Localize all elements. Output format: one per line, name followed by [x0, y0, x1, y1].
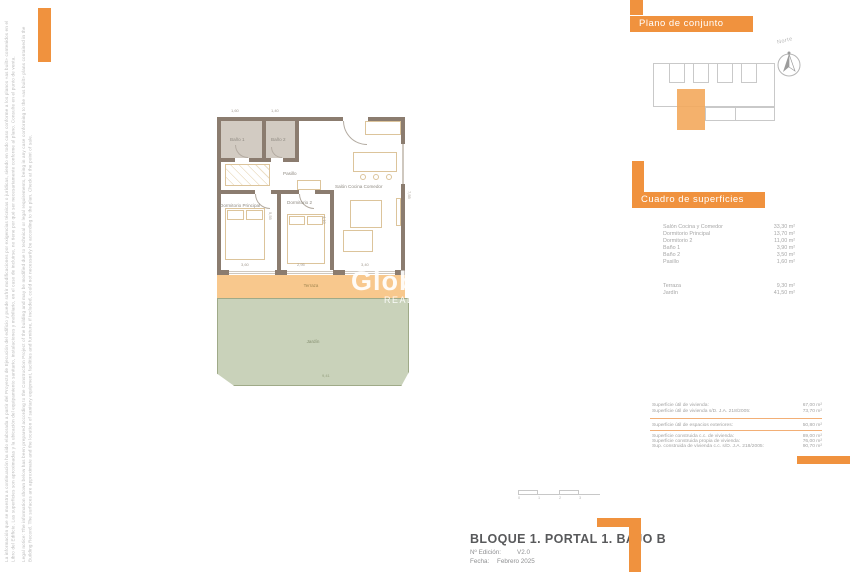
- dim-bed2-v: 4,10: [322, 216, 327, 224]
- wall-bath-divider: [262, 121, 266, 158]
- surface-row: Jardín 41,50 m²: [663, 290, 795, 297]
- accent-bar-siteplan: [630, 0, 643, 15]
- summary-label: Sup. construida de vivienda c.c. s/D. J.…: [652, 444, 764, 449]
- surface-label: Pasillo: [663, 259, 679, 266]
- summary-row: Superficie útil de vivienda: 67,00 m²: [652, 403, 822, 408]
- stool-2: [373, 174, 379, 180]
- summary-divider-2: [650, 430, 822, 431]
- siteplan-mini-map: [645, 55, 785, 135]
- dim-garden-width: 9,41: [322, 373, 330, 378]
- bedroom2-label: Dormitorio 2: [287, 200, 312, 205]
- date-value: Febrero 2025: [497, 558, 535, 565]
- siteplan-div-4: [741, 63, 757, 83]
- summary-label: Superficie útil de vivienda s/D. J.A. 21…: [652, 409, 750, 414]
- window-bottom-2b: [287, 273, 333, 274]
- scale-num-2: 2: [559, 496, 561, 500]
- dim-top-1: 1,60: [231, 108, 239, 113]
- summary-value: 90,70 m²: [803, 444, 822, 449]
- scale-box-2: [559, 490, 579, 495]
- bed-main-pillow-1: [227, 210, 244, 220]
- siteplan-div-3: [717, 63, 733, 83]
- accent-bracket-vertical: [629, 518, 641, 572]
- hall-label: Pasillo: [283, 171, 297, 176]
- scale-bar: 0 1 2 3: [518, 488, 600, 502]
- dim-bottom-1: 3,60: [241, 262, 249, 267]
- wardrobe-hall: [225, 164, 270, 186]
- surface-row: Pasillo 1,60 m²: [663, 259, 795, 266]
- garden-area: Jardín 9,41: [217, 298, 409, 386]
- summary-row: Superficie útil de vivienda s/D. J.A. 21…: [652, 409, 822, 414]
- wall-bath-bottom-3: [283, 158, 299, 162]
- summary-label: Superficie útil de vivienda:: [652, 403, 709, 408]
- summary-row: Sup. construida de vivienda c.c. s/D. J.…: [652, 444, 822, 449]
- closet-bed2: [297, 180, 321, 190]
- wall-bath-bottom-1: [221, 158, 235, 162]
- siteplan-div-1: [669, 63, 685, 83]
- accent-bar-summary: [797, 456, 850, 464]
- siteplan-highlighted-unit: [677, 89, 705, 130]
- legal-disclaimer: La información que se muestra a continua…: [4, 10, 34, 562]
- siteplan-lower-row: [705, 107, 775, 121]
- kitchen-counter: [365, 121, 401, 135]
- accent-bar-surfaces: [632, 161, 644, 193]
- surface-value: 1,60 m²: [777, 259, 795, 266]
- summary-value: 73,70 m²: [803, 409, 822, 414]
- dim-right-v: 7,55: [407, 191, 412, 199]
- stool-1: [360, 174, 366, 180]
- surfaces-header: Cuadro de superficies: [632, 192, 765, 208]
- edition-label: Nº Edición:: [470, 549, 501, 556]
- scale-num-3: 3: [579, 496, 581, 500]
- wall-bed2-right: [330, 190, 334, 270]
- bedroom-main-label: Dormitorio Principal: [220, 203, 260, 208]
- floor-plan: Baño 1 Baño 2 Pasillo Dormitorio Princip…: [213, 96, 413, 390]
- watermark-text-1: Glob: [351, 266, 417, 297]
- summary-divider-1: [650, 418, 822, 419]
- bed-main-pillow-2: [246, 210, 263, 220]
- summary-label: Superficie útil de espacios exteriores:: [652, 423, 733, 428]
- window-bottom-2: [287, 271, 333, 272]
- bath2-label: Baño 2: [271, 137, 286, 142]
- watermark-text-2: REAL: [384, 295, 414, 305]
- window-right: [402, 144, 404, 184]
- living-label: Salón Cocina Comedor: [335, 184, 383, 189]
- wall-bed-divider: [277, 190, 281, 270]
- kitchen-island: [353, 152, 397, 172]
- window-bottom-1: [229, 271, 275, 272]
- summary-value: 67,00 m²: [803, 403, 822, 408]
- dim-bed-main-v: 5,55: [268, 212, 273, 220]
- scale-num-1: 1: [538, 496, 540, 500]
- siteplan-header: Plano de conjunto: [630, 16, 753, 32]
- entrance-door-arc: [343, 121, 367, 145]
- garden-label: Jardín: [218, 339, 408, 344]
- bed-2-pillow-1: [289, 216, 305, 225]
- wall-right-upper: [401, 117, 405, 144]
- summary-value: 50,80 m²: [803, 423, 822, 428]
- wall-bath-bottom-2: [249, 158, 271, 162]
- siteplan-div-2: [693, 63, 709, 83]
- window-bottom-1b: [229, 273, 275, 274]
- surface-label: Jardín: [663, 290, 678, 297]
- dim-top-2: 1,40: [271, 108, 279, 113]
- rug: [343, 230, 373, 252]
- wall-hall-bottom-1: [221, 190, 255, 194]
- siteplan-lower-div: [735, 107, 736, 121]
- bath1-label: Baño 1: [230, 137, 245, 142]
- scale-box-1: [518, 490, 538, 495]
- plan-sheet: La información que se muestra a continua…: [0, 0, 850, 572]
- dim-bottom-2: 2,95: [297, 262, 305, 267]
- bed-2-pillow-2: [307, 216, 323, 225]
- legal-disclaimer-en: Legal notice: The information shown belo…: [21, 10, 34, 562]
- stool-3: [386, 174, 392, 180]
- accent-bar-top-left: [38, 8, 51, 62]
- legal-disclaimer-es: La información que se muestra a continua…: [4, 10, 17, 562]
- scale-num-0: 0: [518, 496, 520, 500]
- tv-unit: [396, 198, 401, 226]
- date-label: Fecha:: [470, 558, 489, 565]
- wall-right-lower: [401, 184, 405, 275]
- wall-hall-bottom-2: [271, 190, 299, 194]
- sofa: [350, 200, 382, 228]
- wall-bath-right: [295, 121, 299, 162]
- edition-value: V2.0: [517, 549, 530, 556]
- summary-row: Superficie útil de espacios exteriores: …: [652, 423, 822, 428]
- surface-value: 41,50 m²: [774, 290, 795, 297]
